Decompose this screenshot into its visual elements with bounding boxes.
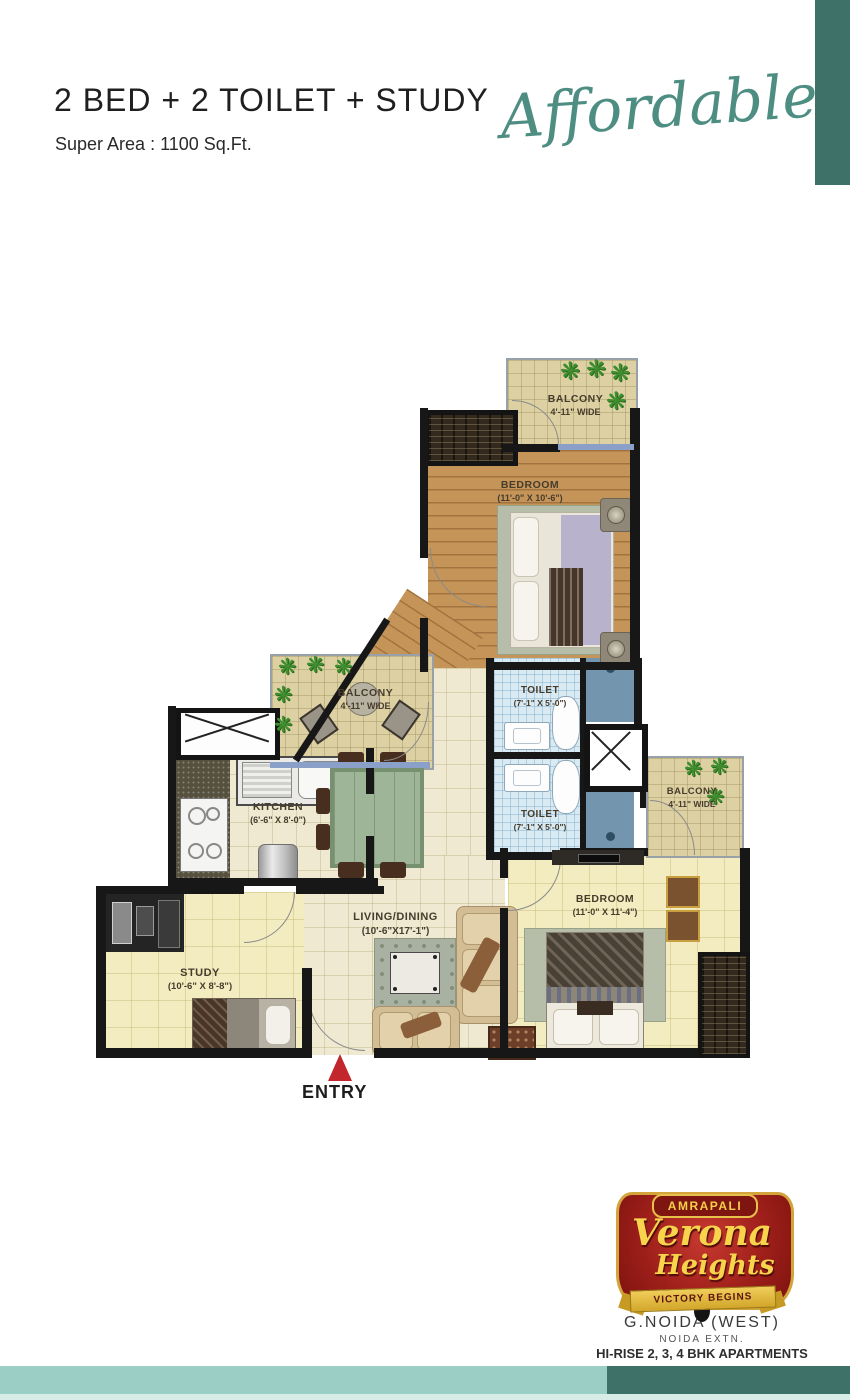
sofa-right — [456, 906, 518, 1024]
wardrobe-bedroom1 — [424, 410, 518, 466]
toilet2-wc — [552, 760, 580, 814]
study-label: STUDY (10'-6" X 8'-8") — [130, 966, 270, 994]
study-desk-unit — [106, 894, 184, 952]
nightstand — [600, 632, 632, 666]
wall — [500, 848, 508, 878]
plant-icon: ❋ — [274, 684, 292, 706]
bedroom2-bed — [546, 932, 644, 1050]
location-line-2: NOIDA EXTN. — [572, 1334, 832, 1345]
entry-arrow — [328, 1054, 352, 1081]
balcony-top-sill — [558, 444, 634, 450]
bedroom2-tv-unit — [552, 850, 644, 865]
shower-head-icon — [606, 832, 615, 841]
nightstand — [666, 876, 700, 908]
bed-pillow — [513, 517, 539, 577]
plant-icon: ❋ — [278, 656, 296, 678]
wall — [96, 1048, 312, 1058]
balcony-right-label: BALCONY 4'-11" WIDE — [646, 786, 738, 810]
lift-shaft — [584, 724, 648, 792]
bedroom2-label: BEDROOM (11'-0" X 11'-4") — [540, 892, 670, 918]
living-label: LIVING/DINING (10'-6"X17'-1") — [328, 910, 463, 938]
wall — [502, 444, 560, 452]
entry-label: ENTRY — [302, 1082, 367, 1103]
page-title: 2 BED + 2 TOILET + STUDY — [54, 82, 489, 119]
floor-plan-poster: 2 BED + 2 TOILET + STUDY Super Area : 11… — [0, 0, 850, 1400]
toilet1-label: TOILET (7'-1" X 5'-0") — [497, 684, 583, 709]
coffee-table — [390, 952, 440, 994]
study-daybed — [192, 998, 296, 1050]
plant-icon: ❋ — [560, 360, 580, 384]
bottom-bar-dark — [607, 1366, 850, 1394]
bedroom1-bed — [510, 512, 614, 648]
wall — [420, 408, 428, 558]
wall — [296, 886, 384, 894]
balcony-left-sill — [270, 762, 430, 768]
wall — [302, 968, 312, 1056]
plant-icon: ❋ — [306, 654, 324, 676]
wall — [500, 908, 508, 1056]
wall — [168, 706, 176, 886]
apartments-description: HI-RISE 2, 3, 4 BHK APARTMENTS — [572, 1346, 832, 1361]
shaft-left — [176, 708, 280, 760]
plant-icon: ❋ — [274, 714, 292, 736]
kitchen-label: KITCHEN (6'-6" X 8'-0") — [218, 800, 338, 826]
wall — [420, 618, 428, 672]
dining-chair — [338, 862, 364, 878]
nightstand — [666, 910, 700, 942]
wardrobe-bedroom2 — [698, 952, 750, 1058]
logo-project-name-1: Verona — [616, 1212, 788, 1254]
wall — [168, 878, 378, 886]
page-subtitle: Super Area : 1100 Sq.Ft. — [55, 134, 252, 155]
wall — [494, 752, 586, 759]
wall — [486, 658, 494, 854]
affordable-script-text: Affordable — [498, 61, 820, 153]
wall — [96, 886, 106, 1058]
dining-chair — [380, 862, 406, 878]
wall — [374, 1048, 504, 1058]
toilet2-label: TOILET (7'-1" X 5'-0") — [497, 808, 583, 833]
wall — [96, 886, 244, 894]
bedroom1-label: BEDROOM (11'-0" X 10'-6") — [455, 478, 605, 504]
toilet1-basin — [504, 722, 550, 750]
bottom-bar-strip — [0, 1394, 850, 1400]
plant-icon: ❋ — [586, 358, 606, 382]
plant-icon: ❋ — [710, 756, 728, 778]
plant-icon: ❋ — [334, 656, 352, 678]
balcony-left-label: BALCONY 4'-11" WIDE — [318, 686, 413, 712]
plant-icon: ❋ — [610, 362, 630, 386]
top-right-accent-bar — [815, 0, 850, 185]
balcony-top-label: BALCONY 4'-11" WIDE — [528, 392, 623, 418]
toilet2-basin — [504, 764, 550, 792]
logo-project-name-2: Heights — [616, 1250, 788, 1281]
bed-pillow — [513, 581, 539, 641]
wall — [366, 748, 374, 794]
dining-table — [330, 768, 424, 868]
wall — [490, 662, 638, 670]
bottom-bar-light — [0, 1366, 607, 1394]
dining-chair — [316, 824, 330, 850]
plant-icon: ❋ — [684, 758, 702, 780]
bed-runner — [549, 568, 583, 646]
